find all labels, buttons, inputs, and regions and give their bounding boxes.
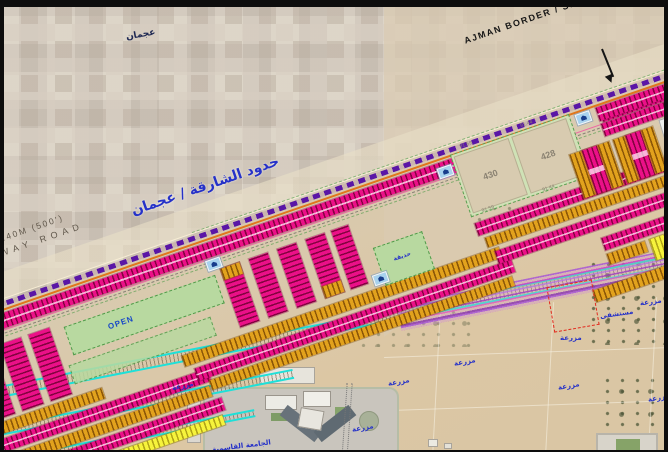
desert-label: مزرعة: [454, 357, 477, 368]
map-canvas: OPEN حديقة 430 428 91.59 91.44 91: [0, 0, 668, 452]
desert-label: الجامعة القاسمية: [212, 439, 272, 452]
desert-label: مستشفى: [600, 309, 634, 321]
desert-label: مزرعة: [560, 335, 582, 342]
desert-label: مزرعة: [171, 381, 194, 393]
desert-labels-layer: مزرعةمزرعةمزرعةمزرعةمستشفىمزرعةمزرعةمزرع…: [4, 7, 668, 452]
desert-label: مزرعة: [388, 377, 411, 388]
desert-label: مزرعة: [352, 423, 375, 434]
desert-label: مزرعة: [648, 393, 668, 404]
desert-label: مزرعة: [558, 381, 581, 392]
desert-label: مزرعة: [640, 298, 663, 308]
